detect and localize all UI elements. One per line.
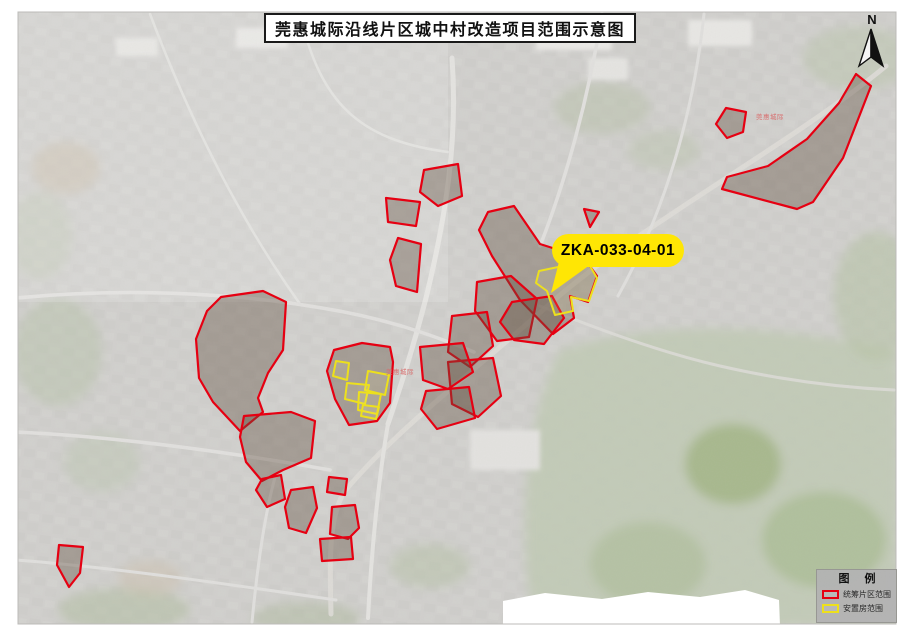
resettlement-polygon <box>333 361 349 380</box>
map-page: 莞惠城际沿线片区城中村改造项目范围示意图 ZKA-033-04-01 N 图 例… <box>0 0 900 636</box>
satellite-map-image <box>0 0 900 636</box>
map-road-label: 莞惠城际 <box>756 114 784 121</box>
north-arrow-label: N <box>855 14 889 26</box>
legend-item-label: 统筹片区范围 <box>843 589 891 600</box>
legend-title: 图 例 <box>822 573 892 586</box>
map-title: 莞惠城际沿线片区城中村改造项目范围示意图 <box>264 13 636 43</box>
project-area-polygon <box>327 477 347 495</box>
legend: 图 例 统筹片区范围安置房范围 <box>816 569 897 623</box>
parcel-callout-label: ZKA-033-04-01 <box>561 242 675 260</box>
north-arrow-icon <box>853 26 889 72</box>
legend-item: 统筹片区范围 <box>822 589 892 600</box>
project-area-polygon <box>330 505 359 539</box>
resettlement-polygon <box>361 405 379 419</box>
project-area-polygon <box>320 537 353 561</box>
legend-item: 安置房范围 <box>822 603 892 614</box>
no-imagery-area <box>503 590 780 626</box>
legend-items: 统筹片区范围安置房范围 <box>822 589 892 614</box>
satellite-basemap <box>8 12 900 634</box>
map-road-label: 莞惠城际 <box>386 369 414 376</box>
project-area-polygon <box>386 198 420 226</box>
legend-swatch <box>822 604 839 613</box>
legend-item-label: 安置房范围 <box>843 603 883 614</box>
project-area-polygon <box>390 238 421 292</box>
legend-swatch <box>822 590 839 599</box>
parcel-callout: ZKA-033-04-01 <box>552 234 684 267</box>
north-arrow: N <box>853 14 889 77</box>
